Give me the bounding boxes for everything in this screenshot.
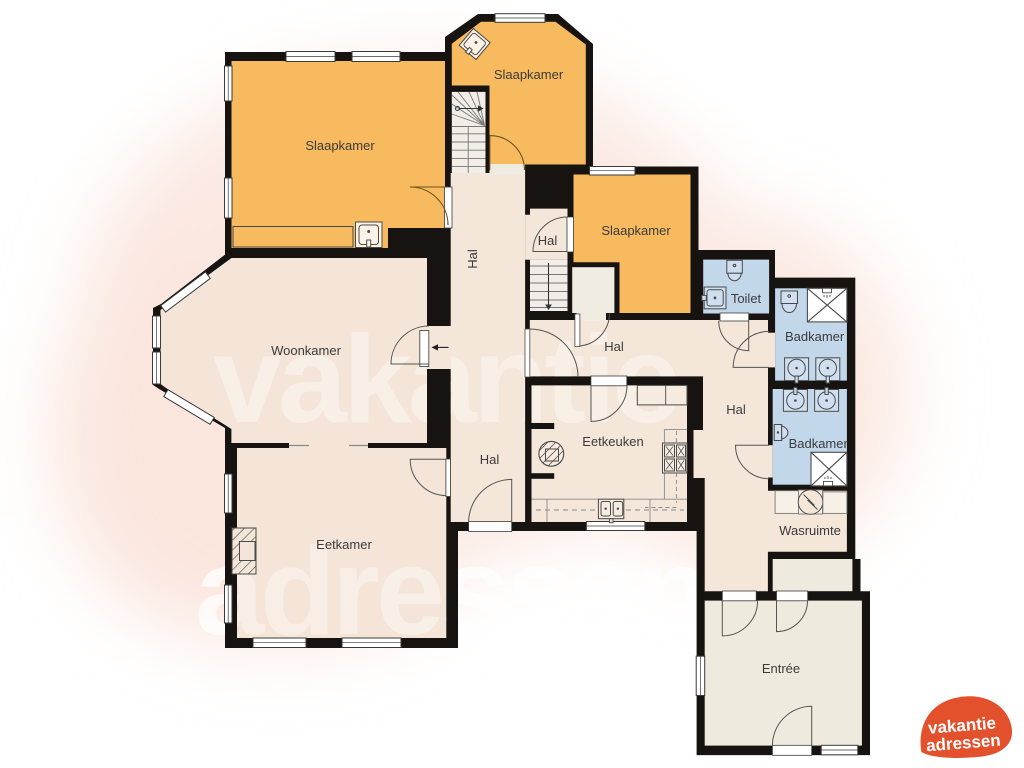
svg-text:Hal: Hal bbox=[538, 233, 558, 248]
svg-text:Slaapkamer: Slaapkamer bbox=[494, 67, 564, 82]
svg-text:Woonkamer: Woonkamer bbox=[271, 343, 342, 358]
svg-text:Toilet: Toilet bbox=[731, 291, 762, 306]
svg-text:Hal: Hal bbox=[604, 339, 624, 354]
svg-text:Wasruimte: Wasruimte bbox=[779, 523, 841, 538]
svg-text:Eetkeuken: Eetkeuken bbox=[582, 434, 643, 449]
svg-text:Badkamer: Badkamer bbox=[785, 329, 845, 344]
svg-text:Entrée: Entrée bbox=[762, 661, 800, 676]
svg-text:Slaapkamer: Slaapkamer bbox=[305, 138, 375, 153]
svg-text:Eetkamer: Eetkamer bbox=[316, 537, 372, 552]
svg-text:Hal: Hal bbox=[480, 452, 500, 467]
svg-text:Badkamer: Badkamer bbox=[789, 436, 849, 451]
svg-text:Hal: Hal bbox=[465, 249, 480, 269]
svg-text:Hal: Hal bbox=[726, 402, 746, 417]
svg-text:Slaapkamer: Slaapkamer bbox=[601, 223, 671, 238]
